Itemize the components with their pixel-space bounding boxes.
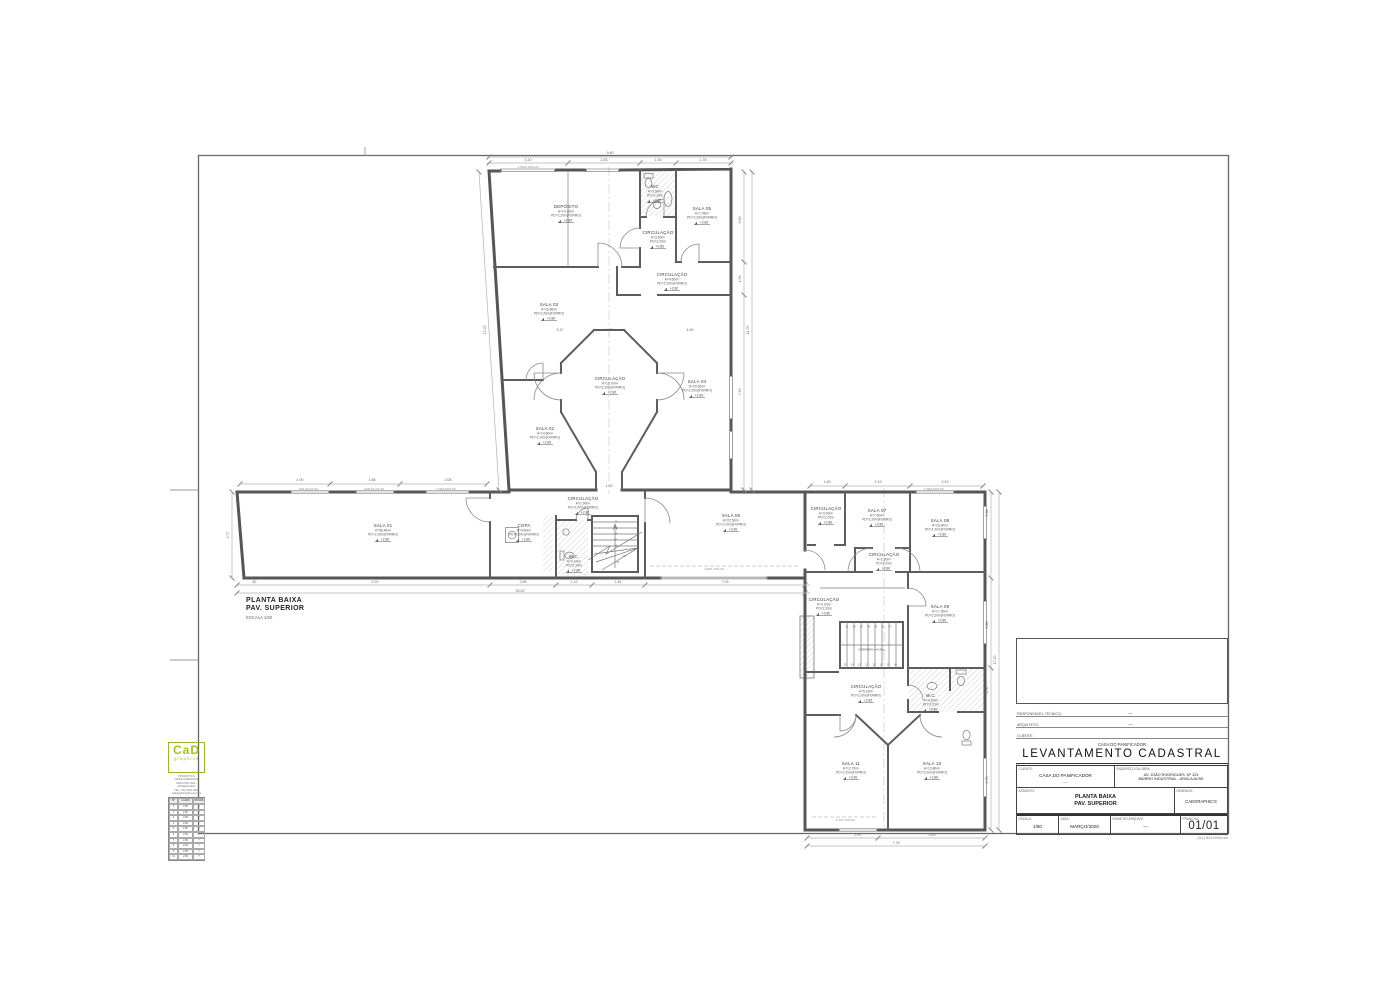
room-ceiling-height: PD=2.20m(FORRO)	[568, 505, 598, 509]
title-block-grid: CLIENTE: CASA DO PANIFICADOR — ENDEREÇO …	[1016, 763, 1228, 835]
plan-caption: PLANTA BAIXA PAV. SUPERIOR ESCALA 1/50	[246, 597, 304, 620]
room-level: +2.80	[822, 612, 831, 616]
file-label: NOME DO ARQUIVO:	[1113, 817, 1145, 821]
room-ceiling-height: PD=2.20m(FORRO)	[716, 522, 746, 526]
subject-cell: ASSUNTO: PLANTA BAIXA PAV. SUPERIOR	[1017, 788, 1175, 813]
level-mark	[859, 700, 862, 703]
dimension-text: 0.98	[985, 510, 989, 517]
revision-box	[1016, 638, 1228, 704]
room-labels: DEPÓSITOA=14.10m²PD=2.20m(FORRO)+2.80WCA…	[368, 184, 955, 780]
signature-row: CLIENTE:	[1016, 728, 1228, 739]
room-level: +2.80	[864, 699, 873, 703]
stair-step-number: 03	[860, 625, 863, 629]
logo-box: CaD graphics	[168, 742, 205, 773]
drawing-author-label: DESENHO:	[1177, 789, 1194, 793]
room-level: +2.80	[522, 538, 531, 542]
client-value2: —	[1017, 779, 1114, 784]
dimension-text: 5.86	[985, 622, 989, 629]
stair-step-number: 04	[867, 625, 870, 629]
room-ceiling-height: PD=2.20m(FORRO)	[862, 517, 892, 521]
room-ceiling-height: PD=2.20m	[816, 606, 832, 610]
dimension-text: 1.35	[738, 276, 742, 283]
signature-label: ARQUITETO:	[1016, 723, 1039, 727]
dimension-text: 1.88	[369, 478, 376, 482]
room-name: SALA 07	[868, 508, 887, 513]
room-level: +2.80	[381, 538, 390, 542]
room-name: CIRCULAÇÃO	[595, 376, 626, 381]
room-level: +2.80	[938, 619, 947, 623]
room-ceiling-height: PD=2.20m(FORRO)	[687, 215, 717, 219]
dimension-text: 9.80	[607, 151, 614, 155]
room-name: COPA	[518, 523, 531, 528]
dimension-text: 7.45	[738, 389, 742, 396]
level-mark	[925, 777, 928, 780]
floor-plan-svg: DEPÓSITOA=14.10m²PD=2.20m(FORRO)+2.80WCA…	[0, 0, 1400, 990]
wall-annotation: 1.50A1.00/1.20	[518, 165, 539, 169]
dimension-text: 4.40	[687, 328, 694, 332]
room-name: W.C.	[569, 554, 579, 559]
dimension-text: 1.20	[606, 484, 613, 488]
signature-label: RESPONSÁVEL TÉCNICO:	[1016, 712, 1062, 716]
room-ceiling-height: PD=2.20m	[876, 561, 892, 565]
stair-step-number: 09	[887, 663, 890, 667]
room-level: +2.80	[608, 391, 617, 395]
logo-contact-line: ARQUITETURA - ENGENHARIA	[168, 782, 205, 789]
sheet-number-cell: PRANCHA: 01/01	[1181, 816, 1227, 834]
plan-title-line2: PAV. SUPERIOR	[246, 605, 304, 613]
dimension-text: 9.22	[372, 580, 379, 584]
stair-step-number: 01	[846, 625, 849, 629]
room-level: +2.80	[849, 776, 858, 780]
thin-lines	[506, 172, 972, 745]
room-level: +2.80	[729, 528, 738, 532]
client-cell: CLIENTE: CASA DO PANIFICADOR —	[1017, 766, 1115, 787]
room-name: SALA 05	[693, 206, 712, 211]
room-ceiling-height: PD=2.20m(FORRO)	[530, 435, 560, 439]
stair-labels: 1009080706050401020304050607151413121110…	[615, 521, 898, 667]
room-ceiling-height: PD=2.20m(FORRO)	[925, 613, 955, 617]
room-level: +2.80	[572, 569, 581, 573]
room-name: CIRCULAÇÃO	[811, 506, 842, 511]
margin-table-cell: 10	[169, 854, 178, 860]
plan-title-line1: PLANTA BAIXA	[246, 597, 304, 605]
title-row-subject: ASSUNTO: PLANTA BAIXA PAV. SUPERIOR DESE…	[1017, 788, 1227, 814]
room-level: +2.80	[882, 567, 891, 571]
wall-annotation: 1.70A.70/1.50	[835, 818, 855, 822]
dimension-text: 2.47	[557, 328, 564, 332]
dimension-text: 25.02	[516, 589, 525, 593]
room-name: CIRCULAÇÃO	[657, 272, 688, 277]
subject-line2: PAV. SUPERIOR	[1017, 801, 1174, 808]
dimension-text: 4.90	[297, 478, 304, 482]
dimension-text: 1.78	[700, 158, 707, 162]
room-level: +2.80	[929, 708, 938, 712]
room-name: SALA 03	[540, 302, 559, 307]
room-level: +2.80	[938, 533, 947, 537]
room-level: +2.80	[824, 521, 833, 525]
subject-label: ASSUNTO:	[1019, 789, 1035, 793]
dimension-labels: 9.803.202.451.301.783.601.357.4511.7012.…	[226, 151, 997, 845]
paper-size-note: (A1) 841x594mm	[1050, 835, 1228, 840]
dimension-text: 2.05	[445, 478, 452, 482]
sheet-title: LEVANTAMENTO CADASTRAL	[1016, 748, 1228, 760]
stair-step-number: 06	[882, 625, 885, 629]
stair-step-number: 07	[889, 625, 892, 629]
logo-contact: PROJETOS E DETALHAMENTOS ARQUITETURA - E…	[168, 775, 205, 795]
stair-step-number: 02	[853, 625, 856, 629]
room-name: CIRCULAÇÃO	[869, 552, 900, 557]
room-level: +2.80	[875, 523, 884, 527]
room-level: +2.80	[656, 245, 665, 249]
room-level: +2.80	[581, 511, 590, 515]
room-name: SALA 09	[931, 604, 950, 609]
room-ceiling-height: PD=2.20m(FORRO)	[917, 770, 947, 774]
logo-contact-line: PROJETOS E DETALHAMENTOS	[168, 775, 205, 782]
level-mark	[690, 395, 693, 398]
room-name: CIRCULAÇÃO	[851, 684, 882, 689]
dimension-text: 2.45	[601, 158, 608, 162]
date-cell: DATA: MARÇO/2020	[1059, 816, 1111, 834]
drawing-author-value: CADGRAPHIC'S	[1175, 799, 1227, 804]
room-ceiling-height: PD=2.20m	[647, 193, 663, 197]
date-value: MARÇO/2020	[1059, 824, 1110, 829]
logo-contact-line: cadgraphics@email.com	[168, 792, 205, 795]
level-mark	[542, 318, 545, 321]
level-mark	[870, 524, 873, 527]
signature-value: —	[1128, 722, 1132, 727]
client-label: CLIENTE:	[1019, 767, 1033, 771]
wall-annotation: JAN.ALU/1.00	[364, 487, 384, 491]
room-ceiling-height: PD=2.20m(FORRO)	[925, 527, 955, 531]
signature-row: ARQUITETO: —	[1016, 717, 1228, 728]
room-name: SALA 01	[374, 523, 393, 528]
dimension-text: 1.12	[571, 580, 578, 584]
scale-label: ESCALA:	[1019, 817, 1032, 821]
project-name-small: CASA DO PANIFICADOR	[1016, 742, 1228, 747]
wall-annotation: JAN.ALU/1.00	[298, 487, 318, 491]
dimension-text: 2.43	[942, 480, 949, 484]
dimension-text: 1.54	[615, 580, 622, 584]
wall-annotation: 4.00A.70/1.10	[704, 567, 724, 571]
margin-table-cell: 7	[193, 854, 205, 860]
client-value: CASA DO PANIFICADOR	[1017, 773, 1114, 778]
room-name: SALA 08	[931, 518, 950, 523]
room-name: CIRCULAÇÃO	[568, 496, 599, 501]
title-row-meta: ESCALA: 1/50 DATA: MARÇO/2020 NOME DO AR…	[1017, 814, 1227, 834]
signature-value: —	[1128, 711, 1132, 716]
room-name: W.C.	[926, 693, 936, 698]
stair-step-number: 15	[844, 663, 847, 667]
level-mark	[695, 222, 698, 225]
address-cell: ENDEREÇO DA OBRA: AV. JOÃO RODRIGUES, Nº…	[1115, 766, 1227, 787]
logo-block: CaD graphics PROJETOS E DETALHAMENTOS AR…	[168, 742, 205, 861]
sheet-number-value: 01/01	[1181, 820, 1227, 832]
room-ceiling-height: PD=2.20m	[650, 239, 666, 243]
window-symbols	[290, 169, 986, 831]
dimension-ticks	[230, 155, 1002, 849]
level-mark	[933, 534, 936, 537]
room-level: +2.80	[930, 776, 939, 780]
level-mark	[933, 620, 936, 623]
scale-value: 1/50	[1017, 824, 1058, 829]
axis-lines	[609, 166, 884, 834]
dimension-text: 2.97	[855, 833, 862, 837]
level-mark	[817, 613, 820, 616]
room-level: +2.80	[547, 317, 556, 321]
room-ceiling-height: PD=2.20m(FORRO)	[368, 532, 398, 536]
stair-step-number: 04	[617, 561, 620, 564]
room-level: +2.80	[700, 221, 709, 225]
room-name: SALA 04	[688, 379, 707, 384]
dimension-text: .82	[252, 580, 257, 584]
room-name: CIRCULAÇÃO	[643, 230, 674, 235]
drawing-sheet: DEPÓSITOA=14.10m²PD=2.20m(FORRO)+2.80WCA…	[0, 0, 1400, 990]
file-value: —	[1111, 824, 1180, 829]
dimension-text: 3.77	[226, 532, 230, 539]
plan-scale: ESCALA 1/50	[246, 615, 304, 620]
room-ceiling-height: PD=2.20m(FORRO)	[836, 770, 866, 774]
level-mark	[844, 777, 847, 780]
dimension-text: 1.45	[824, 480, 831, 484]
dimension-text: 4.70	[985, 777, 989, 784]
room-ceiling-height: PD=2.20m(FORRO)	[509, 532, 539, 536]
level-mark	[538, 442, 541, 445]
address-label: ENDEREÇO DA OBRA:	[1117, 767, 1151, 771]
level-mark	[376, 539, 379, 542]
dimension-text: 7.78	[893, 841, 900, 845]
level-mark	[877, 568, 880, 571]
logo-graphics-text: graphics	[169, 756, 204, 761]
scale-cell: ESCALA: 1/50	[1017, 816, 1059, 834]
drawing-author-cell: DESENHO: CADGRAPHIC'S	[1175, 788, 1227, 813]
date-label: DATA:	[1061, 817, 1070, 821]
room-ceiling-height: PD=2.20m(FORRO)	[682, 388, 712, 392]
room-level: +2.80	[543, 441, 552, 445]
level-mark	[651, 246, 654, 249]
stair-step-number: 08	[894, 663, 897, 667]
room-name: SALA 02	[536, 426, 555, 431]
dimension-text: 7.03	[722, 580, 729, 584]
level-mark	[819, 522, 822, 525]
room-level: +2.80	[564, 219, 573, 223]
dimension-text: 3.43	[929, 833, 936, 837]
logo-cad-text: CaD	[169, 743, 204, 757]
level-mark	[665, 288, 668, 291]
room-level: +2.80	[670, 287, 679, 291]
title-row-client: CLIENTE: CASA DO PANIFICADOR — ENDEREÇO …	[1017, 766, 1227, 788]
handrail-label: CORRIMÃO h=0.90m	[858, 647, 886, 652]
interior-walls	[490, 170, 985, 830]
room-name: DEPÓSITO	[554, 204, 579, 209]
dimension-text: 3.60	[738, 217, 742, 224]
title-block: RESPONSÁVEL TÉCNICO: — ARQUITETO: — CLIE…	[1016, 638, 1228, 834]
wall-annotation: 2.00A.60/1.50	[436, 487, 456, 491]
room-ceiling-height: PD=2.20m	[566, 563, 582, 567]
dimension-text: 1.56	[985, 687, 989, 694]
dimension-text: 3.20	[525, 158, 532, 162]
signature-rows: RESPONSÁVEL TÉCNICO: — ARQUITETO: — CLIE…	[1016, 706, 1228, 739]
dimension-text: 2.15	[875, 480, 882, 484]
room-name: SALA 11	[842, 761, 861, 766]
room-ceiling-height: PD=2.20m	[818, 515, 834, 519]
stair-step-number: 05	[874, 625, 877, 629]
dimension-text: 2.69	[520, 580, 527, 584]
dimension-text: 12.25	[483, 325, 488, 334]
file-cell: NOME DO ARQUIVO: —	[1111, 816, 1181, 834]
level-mark	[576, 512, 579, 515]
signature-row: RESPONSÁVEL TÉCNICO: —	[1016, 706, 1228, 717]
sheet-number-label: PRANCHA:	[1183, 817, 1199, 821]
dimension-text: 1.40	[606, 328, 613, 332]
room-name: SALA 06	[722, 513, 741, 518]
room-name: SALA 10	[923, 761, 942, 766]
room-ceiling-height: PD=2.20m	[923, 702, 939, 706]
dimension-text: 1.30	[655, 158, 662, 162]
room-name: WC	[651, 184, 659, 189]
level-mark	[559, 220, 562, 223]
level-mark	[603, 392, 606, 395]
room-ceiling-height: PD=2.20m(FORRO)	[551, 213, 581, 217]
dimension-text: 17.20	[993, 656, 997, 665]
room-name: CIRCULAÇÃO	[809, 597, 840, 602]
stair-step-number: 10	[880, 663, 883, 667]
address-line2: BAIRRO INDUSTRIAL - ARACAJU/SE	[1115, 777, 1227, 781]
room-level: +2.80	[653, 199, 662, 203]
room-ceiling-height: PD=2.20m(FORRO)	[534, 311, 564, 315]
room-ceiling-height: PD=2.20m(FORRO)	[851, 693, 881, 697]
signature-label: CLIENTE:	[1016, 734, 1033, 738]
dimension-text: 11.70	[746, 326, 750, 335]
room-ceiling-height: PD=2.20m(FORRO)	[657, 281, 687, 285]
wall-annotation: 2.80A.60/1.50	[924, 487, 944, 491]
level-mark	[724, 529, 727, 532]
room-ceiling-height: PD=2.20m(FORRO)	[595, 385, 625, 389]
room-level: +2.80	[695, 394, 704, 398]
margin-table-cell: 2,80	[178, 854, 193, 860]
door-swings	[466, 199, 942, 737]
margin-table: NºLAJESPESOS12,80722,80732,80742,80752,8…	[168, 797, 205, 861]
